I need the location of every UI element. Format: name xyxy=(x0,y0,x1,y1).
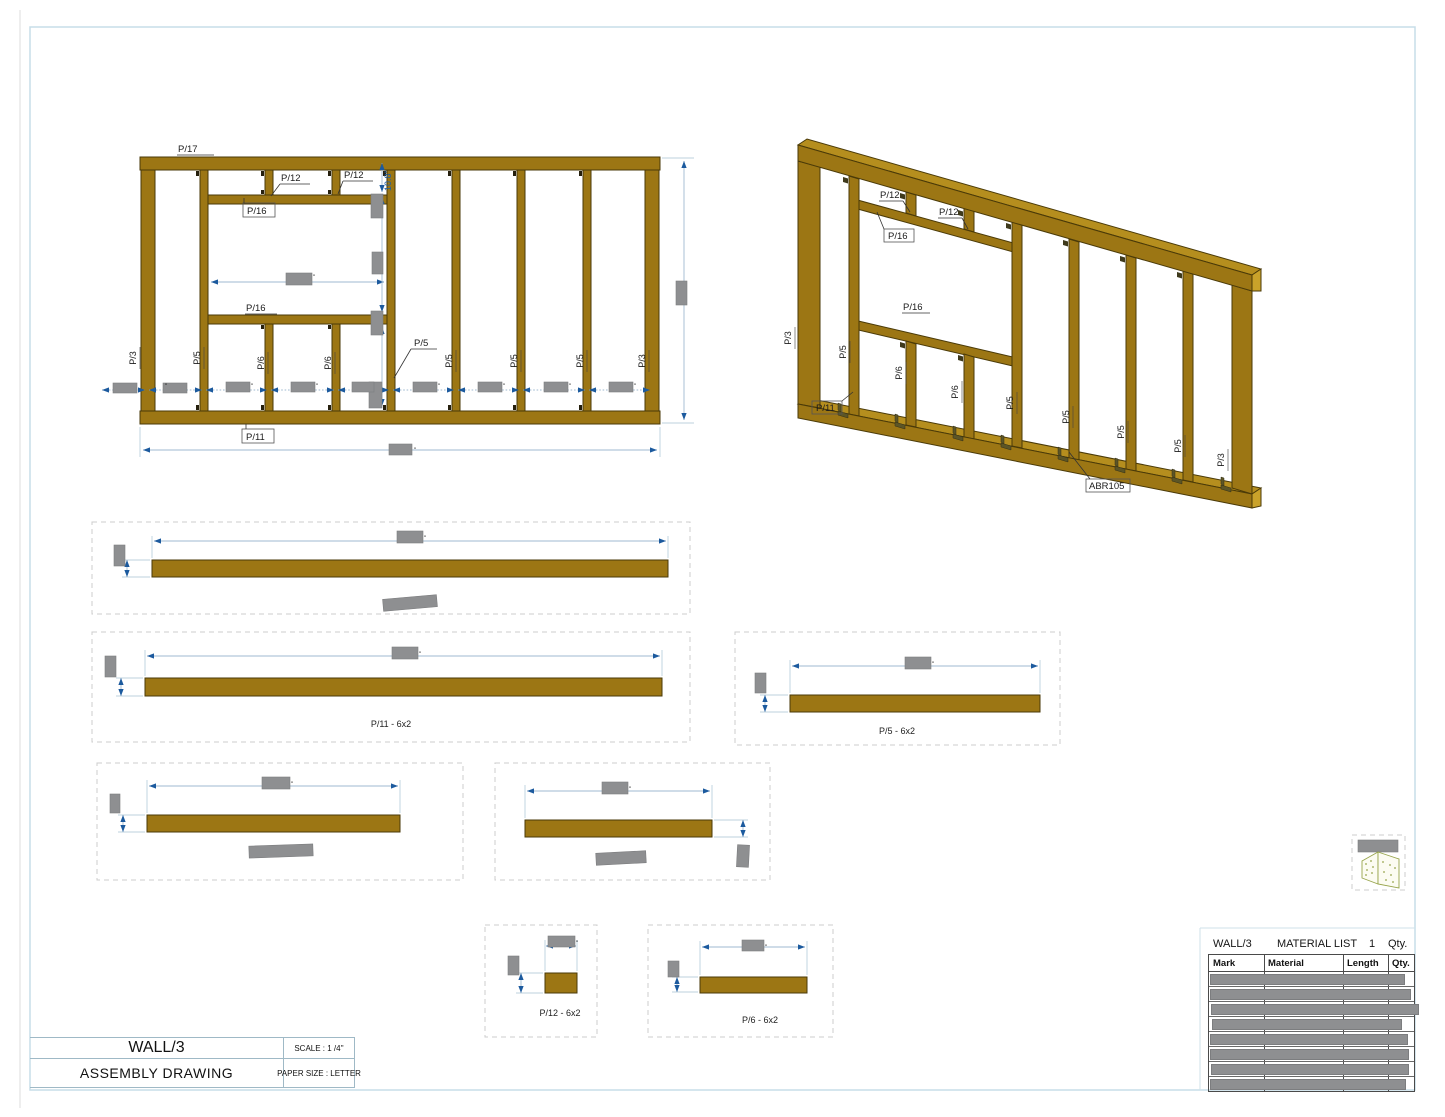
svg-text:": " xyxy=(313,275,315,281)
front-p12-label-b: P/12 xyxy=(344,170,364,181)
stud-label: P/5 xyxy=(1061,410,1071,424)
redacted-row xyxy=(1211,1004,1419,1015)
detail-inch-marks: """ """" xyxy=(291,536,934,951)
redacted-row xyxy=(1210,974,1405,985)
stud-label: P/5 xyxy=(509,354,519,368)
lumber-p17 xyxy=(152,560,668,577)
detail-label-p5: P/5 - 6x2 xyxy=(879,726,915,736)
stud-label: P/6 xyxy=(323,356,333,370)
stud-label: P/5 xyxy=(1116,425,1126,439)
iso-p12-label-a: P/12 xyxy=(880,190,900,201)
front-view: "" """ """" 10.8" P/17 P/12 P/12 P/16 P/… xyxy=(102,144,694,457)
svg-text:": " xyxy=(634,384,636,390)
drawing-name: WALL/3 xyxy=(30,1038,283,1058)
front-p17-label: P/17 xyxy=(178,144,198,155)
title-block: WALL/3 ASSEMBLY DRAWING SCALE : 1 /4'' P… xyxy=(30,1037,355,1088)
front-p16-label-top: P/16 xyxy=(247,206,267,217)
end-stud-left xyxy=(141,170,155,411)
front-p11-label: P/11 xyxy=(246,432,265,443)
cripple-stud xyxy=(265,170,273,195)
iso-p12-label-b: P/12 xyxy=(939,207,959,218)
header-divider xyxy=(1209,971,1414,972)
stud xyxy=(517,170,525,411)
col-header-qty: Qty. xyxy=(1392,958,1410,969)
assembly-drawing-sheet: "" """ """" 10.8" P/17 P/12 P/12 P/16 P/… xyxy=(0,0,1445,1117)
col-header-mark: Mark xyxy=(1213,958,1235,969)
svg-text:": " xyxy=(629,787,631,793)
material-list-title: WALL/3 MATERIAL LIST 1 Qty. xyxy=(1200,938,1415,952)
front-p12-label-a: P/12 xyxy=(281,173,301,184)
redacted-row xyxy=(1212,1019,1402,1030)
material-list-panel: WALL/3 xyxy=(1213,938,1252,950)
stud-label: P/3 xyxy=(128,351,138,365)
stud xyxy=(452,170,460,411)
col-header-material: Material xyxy=(1268,958,1304,969)
svg-text:": " xyxy=(165,384,167,390)
detail-dimensions xyxy=(116,536,1040,993)
detail-label-p12: P/12 - 6x2 xyxy=(539,1008,580,1018)
iso-p16-label-mid: P/16 xyxy=(903,302,923,313)
stud-label: P/5 xyxy=(1005,396,1015,410)
top-plate xyxy=(140,157,660,170)
svg-text:": " xyxy=(251,384,253,390)
redacted-row xyxy=(1210,1034,1408,1045)
stud-label: P/3 xyxy=(783,331,793,345)
stud-label: P/6 xyxy=(894,366,904,380)
stud-label: P/3 xyxy=(637,354,647,368)
svg-text:": " xyxy=(438,384,440,390)
paper-size: PAPER SIZE : LETTER xyxy=(283,1059,355,1087)
stud xyxy=(200,170,208,411)
redacted-row xyxy=(1210,1049,1409,1060)
detail-lumber xyxy=(145,560,1040,993)
detail-label-p11: P/11 - 6x2 xyxy=(371,719,411,729)
svg-text:": " xyxy=(932,662,934,668)
svg-text:": " xyxy=(503,384,505,390)
lumber-p16 xyxy=(147,815,400,832)
stud xyxy=(583,170,591,411)
material-list-heading: MATERIAL LIST xyxy=(1277,938,1357,950)
col-header-length: Length xyxy=(1347,958,1379,969)
material-list-qty-label: Qty. xyxy=(1388,938,1407,950)
lumber-p6 xyxy=(700,977,807,993)
redacted-row xyxy=(1210,1079,1406,1090)
svg-text:": " xyxy=(419,652,421,658)
svg-text:": " xyxy=(291,782,293,788)
iso-view: P/12 P/12 P/16 P/16 P/11 ABR105 P/3 P/5 … xyxy=(783,139,1261,508)
svg-text:": " xyxy=(576,941,578,947)
iso-wood xyxy=(798,139,1261,508)
drawing-type: ASSEMBLY DRAWING xyxy=(30,1059,283,1087)
svg-text:": " xyxy=(765,945,767,951)
iso-p16-label-top: P/16 xyxy=(888,231,908,242)
sill xyxy=(208,315,387,324)
lumber-p11 xyxy=(145,678,662,696)
svg-text:": " xyxy=(569,384,571,390)
dim-10-8: 10.8" xyxy=(383,170,393,191)
bracket-icon xyxy=(1362,852,1399,888)
bottom-plate xyxy=(140,411,660,424)
redacted-row xyxy=(1210,989,1411,1000)
inch-marks: "" """ """" xyxy=(165,275,636,454)
stud-label: P/5 xyxy=(444,354,454,368)
front-p16-label-sill: P/16 xyxy=(246,303,266,314)
detail-redacted-dims xyxy=(105,531,1398,977)
material-list-count: 1 xyxy=(1369,938,1375,950)
header xyxy=(208,195,387,204)
front-frame-wood xyxy=(140,157,660,424)
jack-stud xyxy=(265,324,273,411)
iso-abr105-label: ABR105 xyxy=(1089,481,1124,492)
stud-label: P/6 xyxy=(950,385,960,399)
redacted-row xyxy=(1211,1064,1409,1075)
drawing-scale: SCALE : 1 /4'' xyxy=(283,1038,355,1058)
iso-p11-label: P/11 xyxy=(816,403,835,414)
stud-label: P/5 xyxy=(838,345,848,359)
lumber-p3 xyxy=(525,820,712,837)
stud-label: P/5 xyxy=(575,354,585,368)
material-list-table: Mark Material Length Qty. xyxy=(1208,954,1415,1092)
king-stud xyxy=(387,170,395,411)
stud-label: P/5 xyxy=(192,351,202,365)
end-stud-right xyxy=(645,170,659,411)
stud-label: P/6 xyxy=(256,356,266,370)
svg-text:": " xyxy=(414,448,416,454)
jack-stud xyxy=(332,324,340,411)
stud-label: P/3 xyxy=(1216,453,1226,467)
detail-label-p6: P/6 - 6x2 xyxy=(742,1015,778,1025)
lumber-p12 xyxy=(545,973,577,993)
stud-label: P/5 xyxy=(1173,439,1183,453)
svg-text:": " xyxy=(424,536,426,542)
svg-text:": " xyxy=(316,384,318,390)
front-p5-callout: P/5 xyxy=(414,338,428,349)
lumber-p5 xyxy=(790,695,1040,712)
